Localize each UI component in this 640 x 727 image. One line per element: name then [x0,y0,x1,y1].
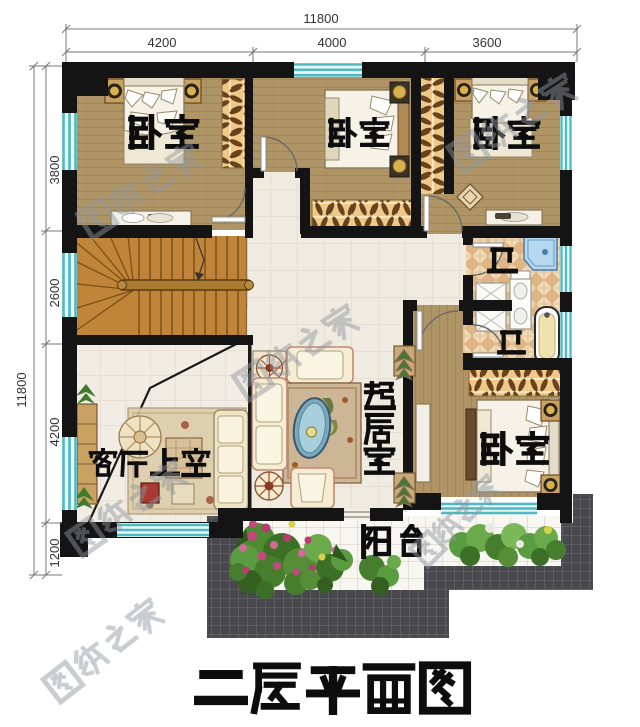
svg-text:11800: 11800 [14,372,29,407]
svg-text:4000: 4000 [318,35,347,50]
svg-text:11800: 11800 [303,11,338,26]
svg-text:3800: 3800 [47,156,62,185]
svg-text:2600: 2600 [47,279,62,308]
svg-text:4200: 4200 [148,35,177,50]
svg-text:3600: 3600 [473,35,502,50]
svg-text:4200: 4200 [47,418,62,447]
svg-text:1200: 1200 [47,539,62,568]
